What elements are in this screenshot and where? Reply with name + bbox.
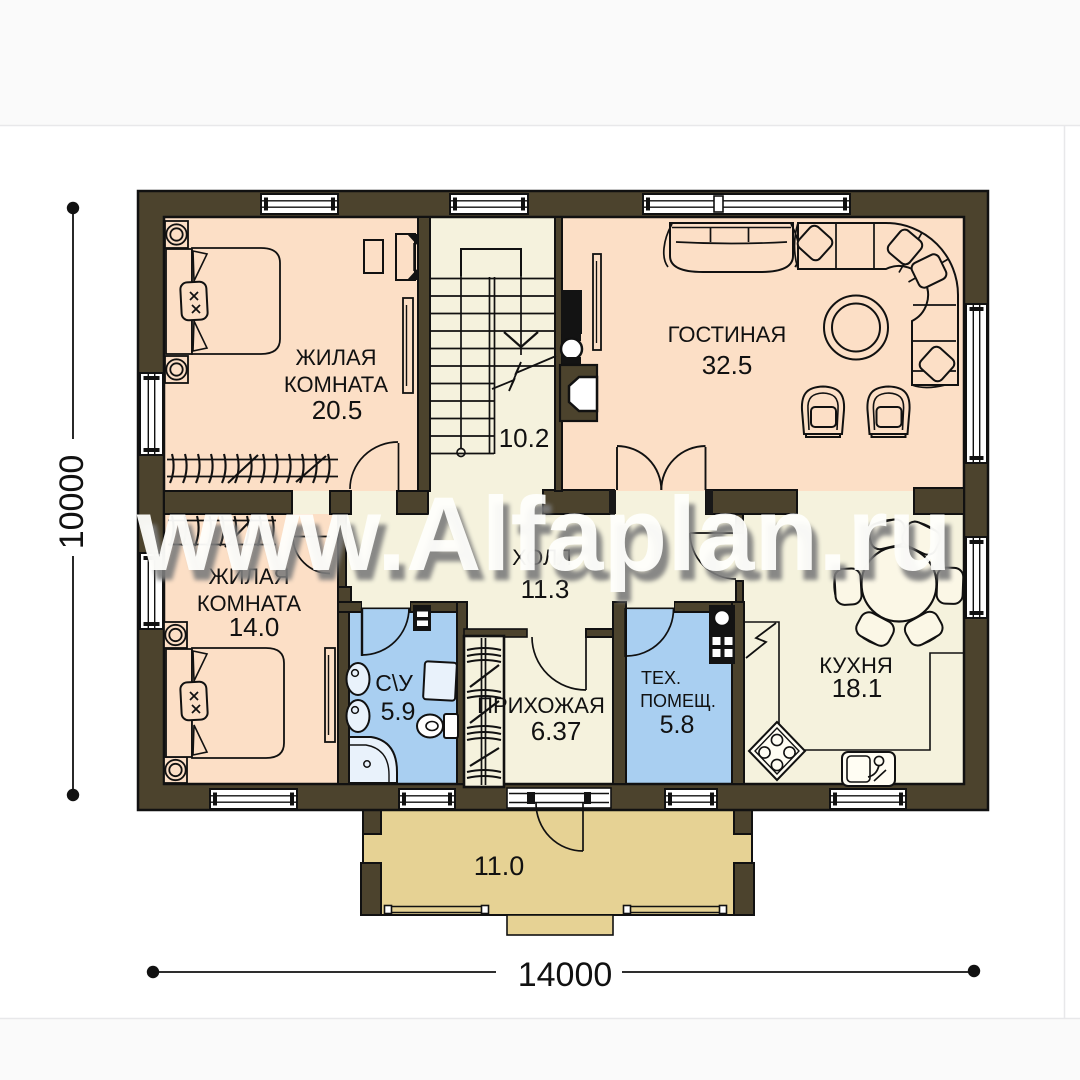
svg-text:5.8: 5.8 <box>660 711 695 739</box>
svg-text:10.2: 10.2 <box>499 423 550 453</box>
svg-text:20.5: 20.5 <box>312 395 363 425</box>
svg-text:ПРИХОЖАЯ: ПРИХОЖАЯ <box>477 693 605 718</box>
svg-text:ГОСТИНАЯ: ГОСТИНАЯ <box>668 322 787 347</box>
svg-text:ЖИЛАЯ: ЖИЛАЯ <box>295 345 376 370</box>
svg-text:С\У: С\У <box>375 670 413 696</box>
svg-text:www.Alfaplan.ru: www.Alfaplan.ru <box>136 476 952 593</box>
svg-text:ПОМЕЩ.: ПОМЕЩ. <box>640 691 716 711</box>
svg-text:18.1: 18.1 <box>832 673 883 703</box>
svg-text:КОМНАТА: КОМНАТА <box>284 372 389 397</box>
svg-text:ТЕХ.: ТЕХ. <box>641 668 681 688</box>
svg-text:5.9: 5.9 <box>381 698 416 726</box>
svg-text:14.0: 14.0 <box>229 612 280 642</box>
svg-text:6.37: 6.37 <box>531 716 582 746</box>
svg-text:10000: 10000 <box>53 455 91 550</box>
svg-text:11.0: 11.0 <box>474 851 525 881</box>
svg-text:14000: 14000 <box>518 956 613 994</box>
svg-text:32.5: 32.5 <box>702 350 753 380</box>
